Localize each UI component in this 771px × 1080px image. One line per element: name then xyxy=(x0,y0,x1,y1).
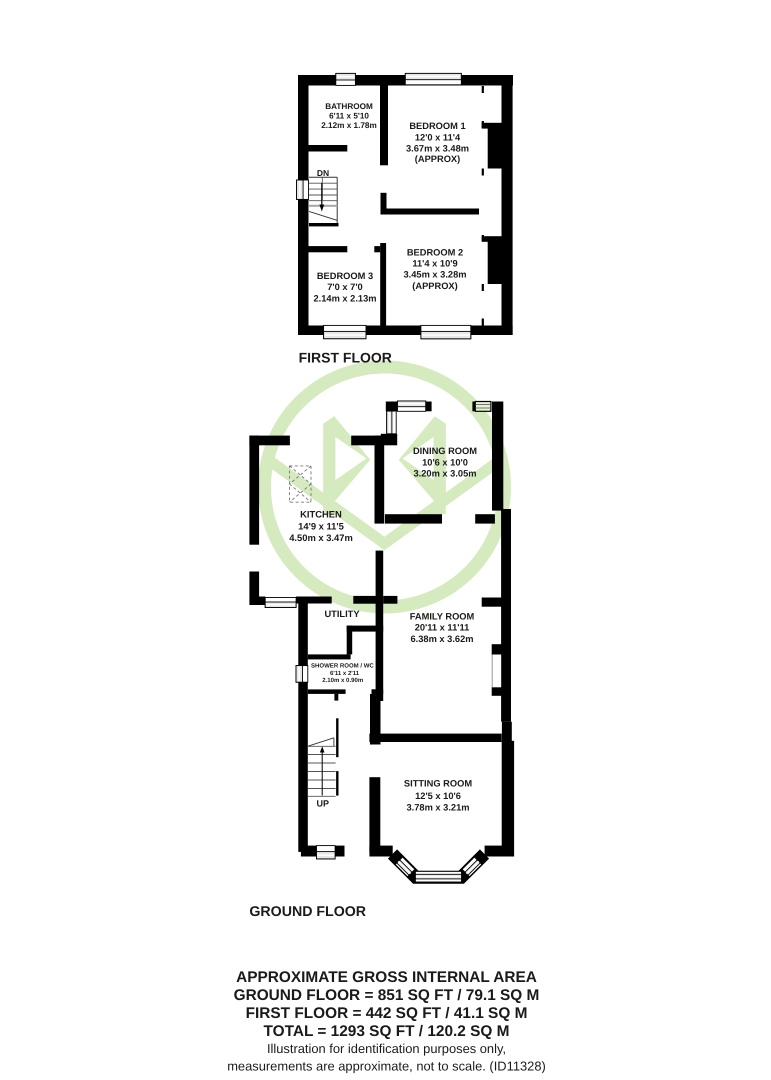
svg-text:GROUND FLOOR = 851 SQ FT / 79.: GROUND FLOOR = 851 SQ FT / 79.1 SQ M xyxy=(234,987,540,1004)
svg-text:2.14m x 2.13m: 2.14m x 2.13m xyxy=(313,294,376,304)
svg-text:Illustration for identificatio: Illustration for identification purposes… xyxy=(267,1041,506,1056)
svg-text:6'11 x 2'11: 6'11 x 2'11 xyxy=(330,670,360,677)
svg-text:BATHROOM: BATHROOM xyxy=(325,102,373,111)
svg-text:measurements are approximate,: measurements are approximate, not to sca… xyxy=(227,1059,546,1074)
svg-text:APPROXIMATE GROSS INTERNAL ARE: APPROXIMATE GROSS INTERNAL AREA xyxy=(236,969,537,986)
svg-text:7'0 x 7'0: 7'0 x 7'0 xyxy=(327,282,362,292)
svg-text:UTILITY: UTILITY xyxy=(324,609,360,619)
svg-text:BEDROOM 2: BEDROOM 2 xyxy=(407,248,463,258)
svg-text:3.67m x 3.48m: 3.67m x 3.48m xyxy=(406,143,469,153)
svg-text:10'6 x 10'0: 10'6 x 10'0 xyxy=(422,457,468,467)
svg-text:12'5 x 10'6: 12'5 x 10'6 xyxy=(415,791,461,801)
svg-text:KITCHEN: KITCHEN xyxy=(300,508,342,519)
svg-text:12'0 x 11'4: 12'0 x 11'4 xyxy=(415,132,461,142)
svg-text:3.20m x 3.05m: 3.20m x 3.05m xyxy=(413,468,476,478)
svg-text:(APPROX): (APPROX) xyxy=(415,154,460,164)
svg-text:TOTAL = 1293 SQ FT / 120.2 SQ: TOTAL = 1293 SQ FT / 120.2 SQ M xyxy=(264,1023,510,1040)
svg-text:SITTING ROOM: SITTING ROOM xyxy=(404,779,472,789)
svg-text:FIRST FLOOR = 442 SQ FT / 41.1: FIRST FLOOR = 442 SQ FT / 41.1 SQ M xyxy=(246,1005,528,1022)
svg-text:DN: DN xyxy=(317,168,329,178)
svg-text:SHOWER ROOM / WC: SHOWER ROOM / WC xyxy=(311,663,374,670)
svg-text:2.12m x 1.78m: 2.12m x 1.78m xyxy=(321,121,377,130)
svg-text:20'11 x 11'11: 20'11 x 11'11 xyxy=(415,622,470,632)
svg-text:3.78m x 3.21m: 3.78m x 3.21m xyxy=(406,803,469,813)
svg-text:14'9 x 11'5: 14'9 x 11'5 xyxy=(298,521,344,532)
svg-text:UP: UP xyxy=(317,799,330,809)
svg-text:6'11 x 5'10: 6'11 x 5'10 xyxy=(329,112,369,121)
svg-text:DINING ROOM: DINING ROOM xyxy=(413,446,477,456)
svg-text:FAMILY ROOM: FAMILY ROOM xyxy=(410,611,475,621)
svg-text:3.45m x 3.28m: 3.45m x 3.28m xyxy=(403,270,466,280)
svg-text:GROUND FLOOR: GROUND FLOOR xyxy=(249,904,366,920)
svg-text:4.50m x 3.47m: 4.50m x 3.47m xyxy=(289,532,353,543)
svg-text:FIRST FLOOR: FIRST FLOOR xyxy=(299,350,392,366)
svg-text:6.38m x 3.62m: 6.38m x 3.62m xyxy=(410,634,473,644)
svg-text:BEDROOM 1: BEDROOM 1 xyxy=(409,121,465,131)
svg-text:BEDROOM 3: BEDROOM 3 xyxy=(317,271,373,281)
svg-text:(APPROX): (APPROX) xyxy=(412,281,457,291)
svg-text:11'4 x 10'9: 11'4 x 10'9 xyxy=(412,259,457,269)
svg-text:2.10m x 0.90m: 2.10m x 0.90m xyxy=(322,677,363,684)
